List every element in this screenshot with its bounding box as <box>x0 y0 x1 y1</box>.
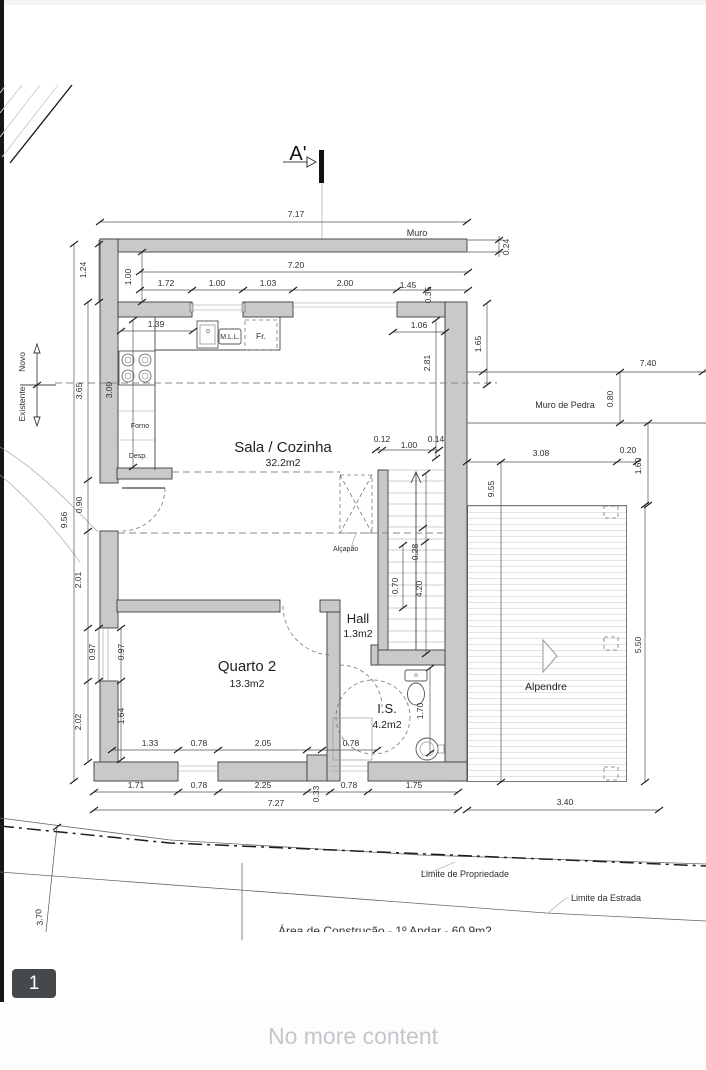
section-marker: A' <box>283 143 324 239</box>
dim-left-total: 9.56 <box>59 511 69 528</box>
dim-muro-thickness: 0.24 <box>501 238 511 255</box>
label-existente: Existente <box>17 386 27 421</box>
label-novo: Novo <box>17 352 27 372</box>
label-muro: Muro <box>407 228 428 238</box>
dim-bottom-1: 1.71 <box>128 780 145 790</box>
dim-left-inset-b: 1.00 <box>123 268 133 285</box>
dim-stone-w: 0.80 <box>605 390 615 407</box>
dim-stone-len: 7.40 <box>640 358 657 368</box>
dim-bottom-5: 1.75 <box>406 780 423 790</box>
dim-stair-len: 4.20 <box>414 580 424 597</box>
room-label-hall: Hall <box>347 611 370 626</box>
dim-right-inner: 2.81 <box>422 354 432 371</box>
dim-stair-width: 0.70 <box>390 577 400 594</box>
viewer-footer: No more content <box>0 1002 706 1070</box>
dim-top-3: 1.03 <box>260 278 277 288</box>
section-arrow-icon <box>307 157 316 167</box>
existente-arrow-icon <box>34 417 40 426</box>
dim-porch-r: 1.60 <box>633 457 643 474</box>
room-area-quarto2: 13.3m2 <box>229 678 264 690</box>
dim-left-4: 0.97 <box>87 643 97 660</box>
label-alcapao: Alçapão <box>333 546 358 553</box>
dim-stair-row-1: 0.12 <box>374 434 391 444</box>
dim-left-3: 2.01 <box>73 571 83 588</box>
dim-top-width: 7.20 <box>288 260 305 270</box>
section-label: A' <box>289 143 306 165</box>
room-area-is: 4.2m2 <box>372 719 401 731</box>
dim-stair-tread: 0.28 <box>410 543 420 560</box>
room-area-hall: 1.3m2 <box>343 628 372 640</box>
room-label-alpendre: Alpendre <box>525 681 567 693</box>
dim-porch-left: 9.55 <box>486 480 496 497</box>
label-fr: Fr. <box>256 331 266 341</box>
dim-stair-row-2: 1.00 <box>401 440 418 450</box>
dim-win-right: 1.06 <box>411 320 428 330</box>
dim-porch-h: 5.50 <box>633 636 643 653</box>
label-desp: Desp. <box>129 453 147 460</box>
dim-inner-1: 1.33 <box>142 738 159 748</box>
dim-bottom-4: 0.78 <box>341 780 358 790</box>
dim-porch-bottom: 3.40 <box>557 797 574 807</box>
dim-top-4: 2.00 <box>337 278 354 288</box>
dim-inner-4: 0.78 <box>343 738 360 748</box>
label-muro-de-pedra: Muro de Pedra <box>535 400 595 410</box>
dim-muro-total: 7.17 <box>288 209 305 219</box>
room-label-quarto2: Quarto 2 <box>218 658 276 675</box>
stone-wall <box>467 372 706 423</box>
room-label-is: I.S. <box>377 701 397 716</box>
dim-inner-3: 2.05 <box>255 738 272 748</box>
dim-left-inset-a: 1.24 <box>78 261 88 278</box>
page-number-badge: 1 <box>12 969 56 998</box>
end-of-content-message: No more content <box>268 1023 438 1050</box>
washbasin-icon <box>416 738 438 760</box>
dim-site-d: 3.70 <box>33 908 45 926</box>
dim-kitchen-counter: 1.39 <box>148 319 165 329</box>
dim-quarto-low: 1.64 <box>116 707 126 724</box>
dim-bottom-2: 0.78 <box>191 780 208 790</box>
dim-is-h: 1.70 <box>415 702 425 719</box>
porch-arrow-icon <box>543 640 557 672</box>
toilet-icon <box>405 670 427 681</box>
dim-left-5: 2.02 <box>73 713 83 730</box>
dim-top-1: 1.72 <box>158 278 175 288</box>
dim-inner-2: 0.78 <box>191 738 208 748</box>
dim-left-2: 0.90 <box>74 496 84 513</box>
floor-plan-drawing: A' <box>0 0 706 1002</box>
dim-porch-post: 0.20 <box>620 445 637 455</box>
dim-bottom-total: 7.27 <box>268 798 285 808</box>
area-note-text: Área de Construção - 1º Andar - 60.9m2 <box>278 924 492 932</box>
label-limite-propriedade: Limite de Propriedade <box>421 869 509 879</box>
trapdoor <box>340 475 372 545</box>
label-forno: Forno <box>131 423 149 430</box>
dim-bottom-3: 2.25 <box>255 780 272 790</box>
document-page[interactable]: A' <box>0 0 706 1002</box>
dim-kitchen-depth: 3.09 <box>104 381 114 398</box>
dim-stair-row-3: 0.14 <box>428 434 445 444</box>
porch-symbols <box>543 506 618 780</box>
dim-right-outer: 1.65 <box>473 335 483 352</box>
dim-top-5: 1.45 <box>400 280 417 290</box>
dim-porch-top: 3.08 <box>533 448 550 458</box>
dim-bottom-jog: 0.33 <box>311 785 321 802</box>
dim-quarto-win: 0.97 <box>116 643 126 660</box>
label-mll: M.L.L. <box>220 334 240 341</box>
document-viewer: A' <box>0 0 706 1070</box>
room-area-sala: 32.2m2 <box>265 457 300 469</box>
novo-arrow-icon <box>34 344 40 353</box>
area-note: Área de Construção - 1º Andar - 60.9m2 <box>278 922 608 932</box>
site-hatch <box>0 85 72 163</box>
dim-top-2: 1.00 <box>209 278 226 288</box>
dim-left-1: 3.65 <box>74 382 84 399</box>
room-label-sala: Sala / Cozinha <box>234 439 332 456</box>
dim-top-jog: 0.35 <box>423 286 433 303</box>
label-limite-estrada: Limite da Estrada <box>571 893 641 903</box>
